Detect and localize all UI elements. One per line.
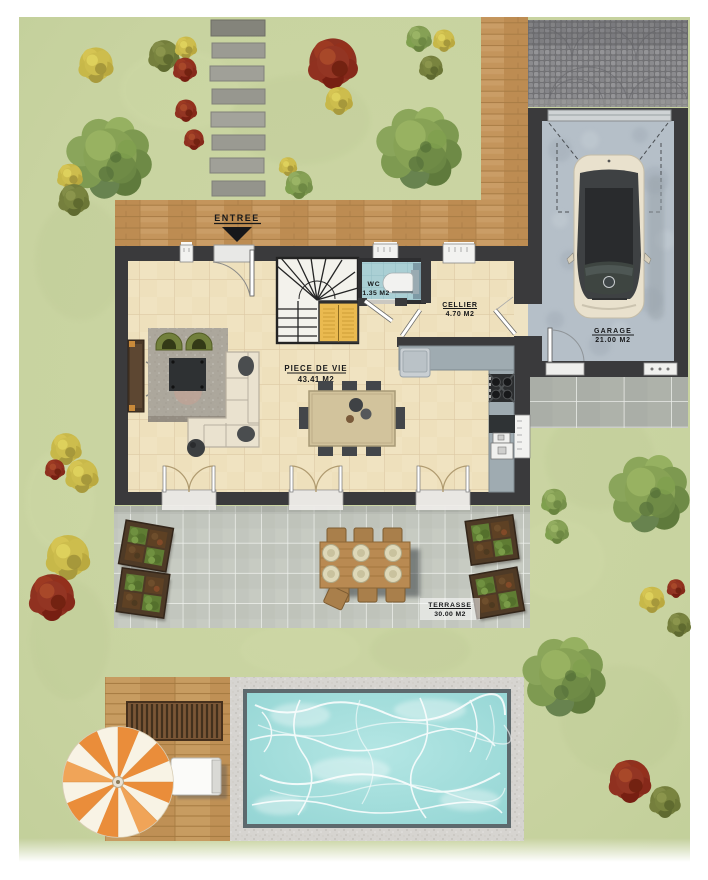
svg-text:ENTREE: ENTREE (214, 213, 260, 223)
svg-text:TERRASSE: TERRASSE (428, 602, 471, 609)
svg-text:GARAGE: GARAGE (594, 328, 632, 335)
svg-text:4.70 M2: 4.70 M2 (446, 311, 475, 318)
svg-text:1.35 M2: 1.35 M2 (362, 290, 389, 297)
svg-text:WC: WC (368, 281, 381, 288)
svg-text:CELLIER: CELLIER (442, 302, 478, 309)
svg-text:30.00 M2: 30.00 M2 (434, 611, 466, 618)
svg-text:PIECE DE VIE: PIECE DE VIE (284, 364, 347, 373)
svg-text:21.00 M2: 21.00 M2 (595, 337, 631, 344)
